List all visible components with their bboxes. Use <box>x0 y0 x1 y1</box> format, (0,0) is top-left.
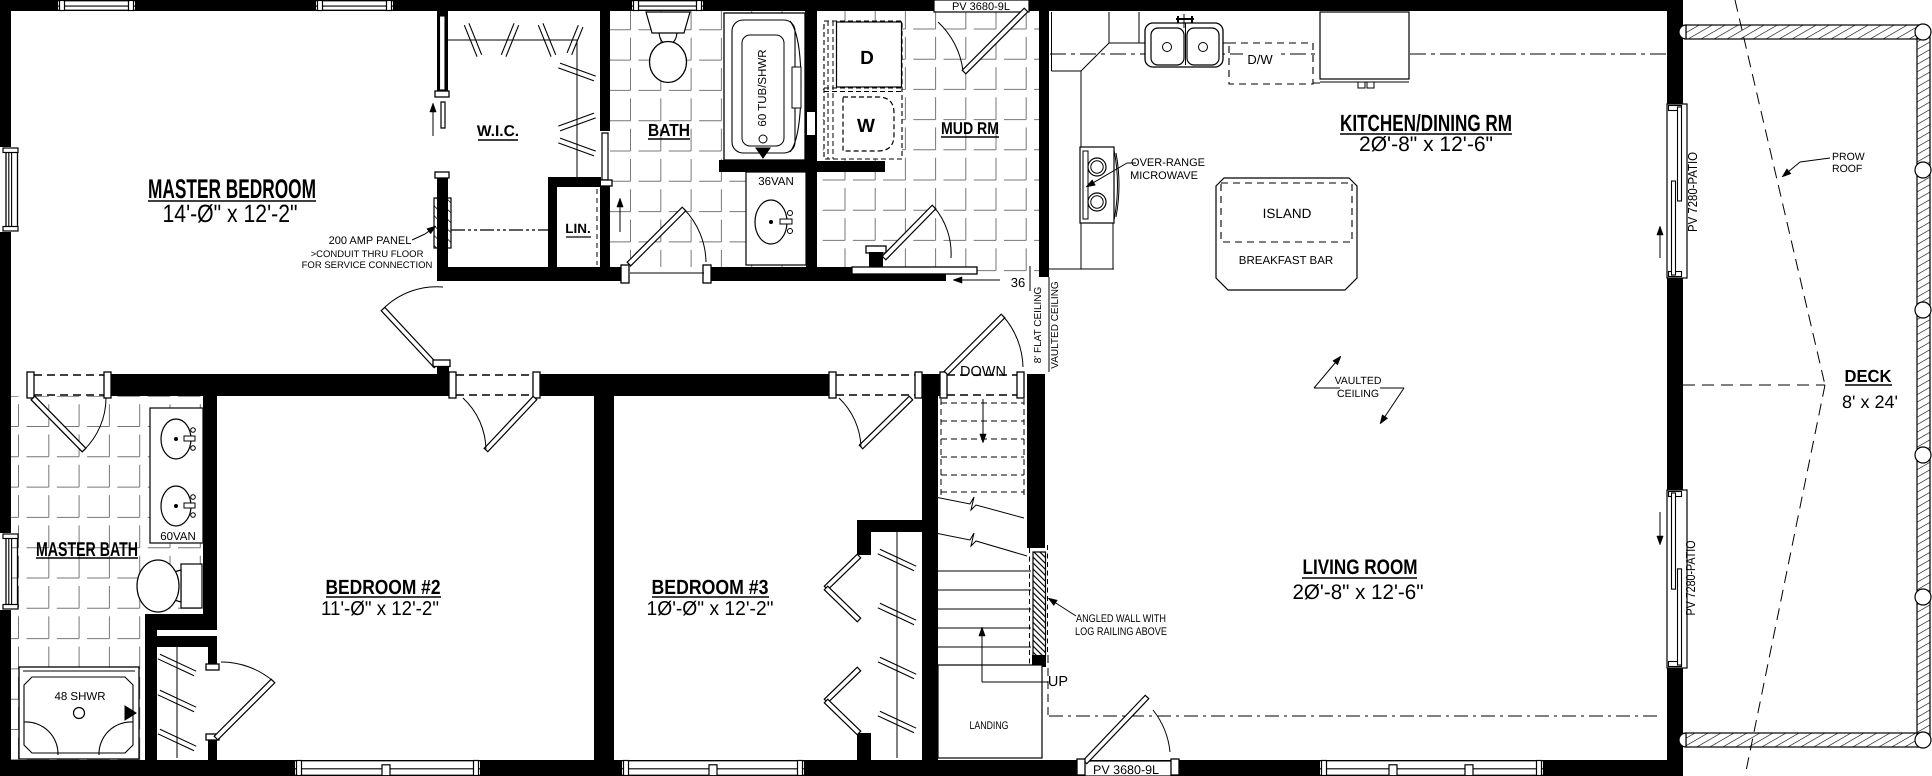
svg-text:ISLAND: ISLAND <box>1263 206 1312 221</box>
svg-text:BEDROOM #3: BEDROOM #3 <box>652 576 769 599</box>
svg-text:2Ø'-8" x 12'-6": 2Ø'-8" x 12'-6" <box>1359 133 1493 156</box>
svg-text:36: 36 <box>1011 275 1025 290</box>
svg-text:8' x 24': 8' x 24' <box>1842 392 1898 412</box>
svg-text:D/W: D/W <box>1247 52 1273 67</box>
svg-text:14'-Ø" x 12'-2": 14'-Ø" x 12'-2" <box>163 200 298 228</box>
svg-text:UP: UP <box>1048 674 1068 690</box>
svg-text:200 AMP PANEL: 200 AMP PANEL <box>329 235 412 247</box>
svg-text:1Ø'-Ø" x 12'-2": 1Ø'-Ø" x 12'-2" <box>647 598 774 620</box>
svg-text:LANDING: LANDING <box>970 720 1009 732</box>
svg-text:ROOF: ROOF <box>1832 163 1862 175</box>
svg-text:D: D <box>860 48 874 69</box>
svg-text:MUD RM: MUD RM <box>941 119 999 138</box>
svg-text:60 TUB/SHWR: 60 TUB/SHWR <box>757 49 769 126</box>
svg-text:BEDROOM #2: BEDROOM #2 <box>326 576 441 599</box>
svg-text:36VAN: 36VAN <box>758 176 794 188</box>
svg-text:VAULTED: VAULTED <box>1335 375 1382 387</box>
svg-text:ANGLED WALL WITH: ANGLED WALL WITH <box>1076 613 1166 625</box>
svg-text:8' FLAT CEILING: 8' FLAT CEILING <box>1033 286 1044 363</box>
svg-text:60VAN: 60VAN <box>160 531 196 543</box>
svg-text:W.I.C.: W.I.C. <box>477 123 519 140</box>
svg-text:W: W <box>857 116 875 137</box>
svg-text:MICROWAVE: MICROWAVE <box>1130 170 1198 182</box>
svg-text:DECK: DECK <box>1845 366 1892 386</box>
svg-text:PV 7280-PATIO: PV 7280-PATIO <box>1683 541 1698 616</box>
svg-text:11'-Ø" x 12'-2": 11'-Ø" x 12'-2" <box>321 598 439 620</box>
svg-text:DOWN: DOWN <box>960 364 1006 380</box>
svg-text:48 SHWR: 48 SHWR <box>54 691 105 703</box>
svg-text:PROW: PROW <box>1832 151 1865 163</box>
svg-text:LOG RAILING ABOVE: LOG RAILING ABOVE <box>1075 626 1167 638</box>
svg-text:BATH: BATH <box>648 120 690 140</box>
svg-text:LIVING ROOM: LIVING ROOM <box>1303 556 1418 579</box>
svg-text:2Ø'-8" x 12'-6": 2Ø'-8" x 12'-6" <box>1293 581 1424 604</box>
svg-text:FOR SERVICE CONNECTION: FOR SERVICE CONNECTION <box>302 260 433 271</box>
svg-text:LIN.: LIN. <box>565 221 591 236</box>
svg-text:PV 3680-9L: PV 3680-9L <box>1093 763 1159 776</box>
svg-text:>CONDUIT THRU FLOOR: >CONDUIT THRU FLOOR <box>311 249 424 260</box>
svg-text:VAULTED CEILING: VAULTED CEILING <box>1050 281 1061 369</box>
svg-text:PV 7280-PATIO: PV 7280-PATIO <box>1685 152 1700 232</box>
svg-text:CEILING: CEILING <box>1337 388 1379 400</box>
svg-text:PV 3680-9L: PV 3680-9L <box>952 1 1010 13</box>
svg-text:BREAKFAST BAR: BREAKFAST BAR <box>1239 255 1333 267</box>
svg-text:OVER-RANGE: OVER-RANGE <box>1131 157 1205 169</box>
